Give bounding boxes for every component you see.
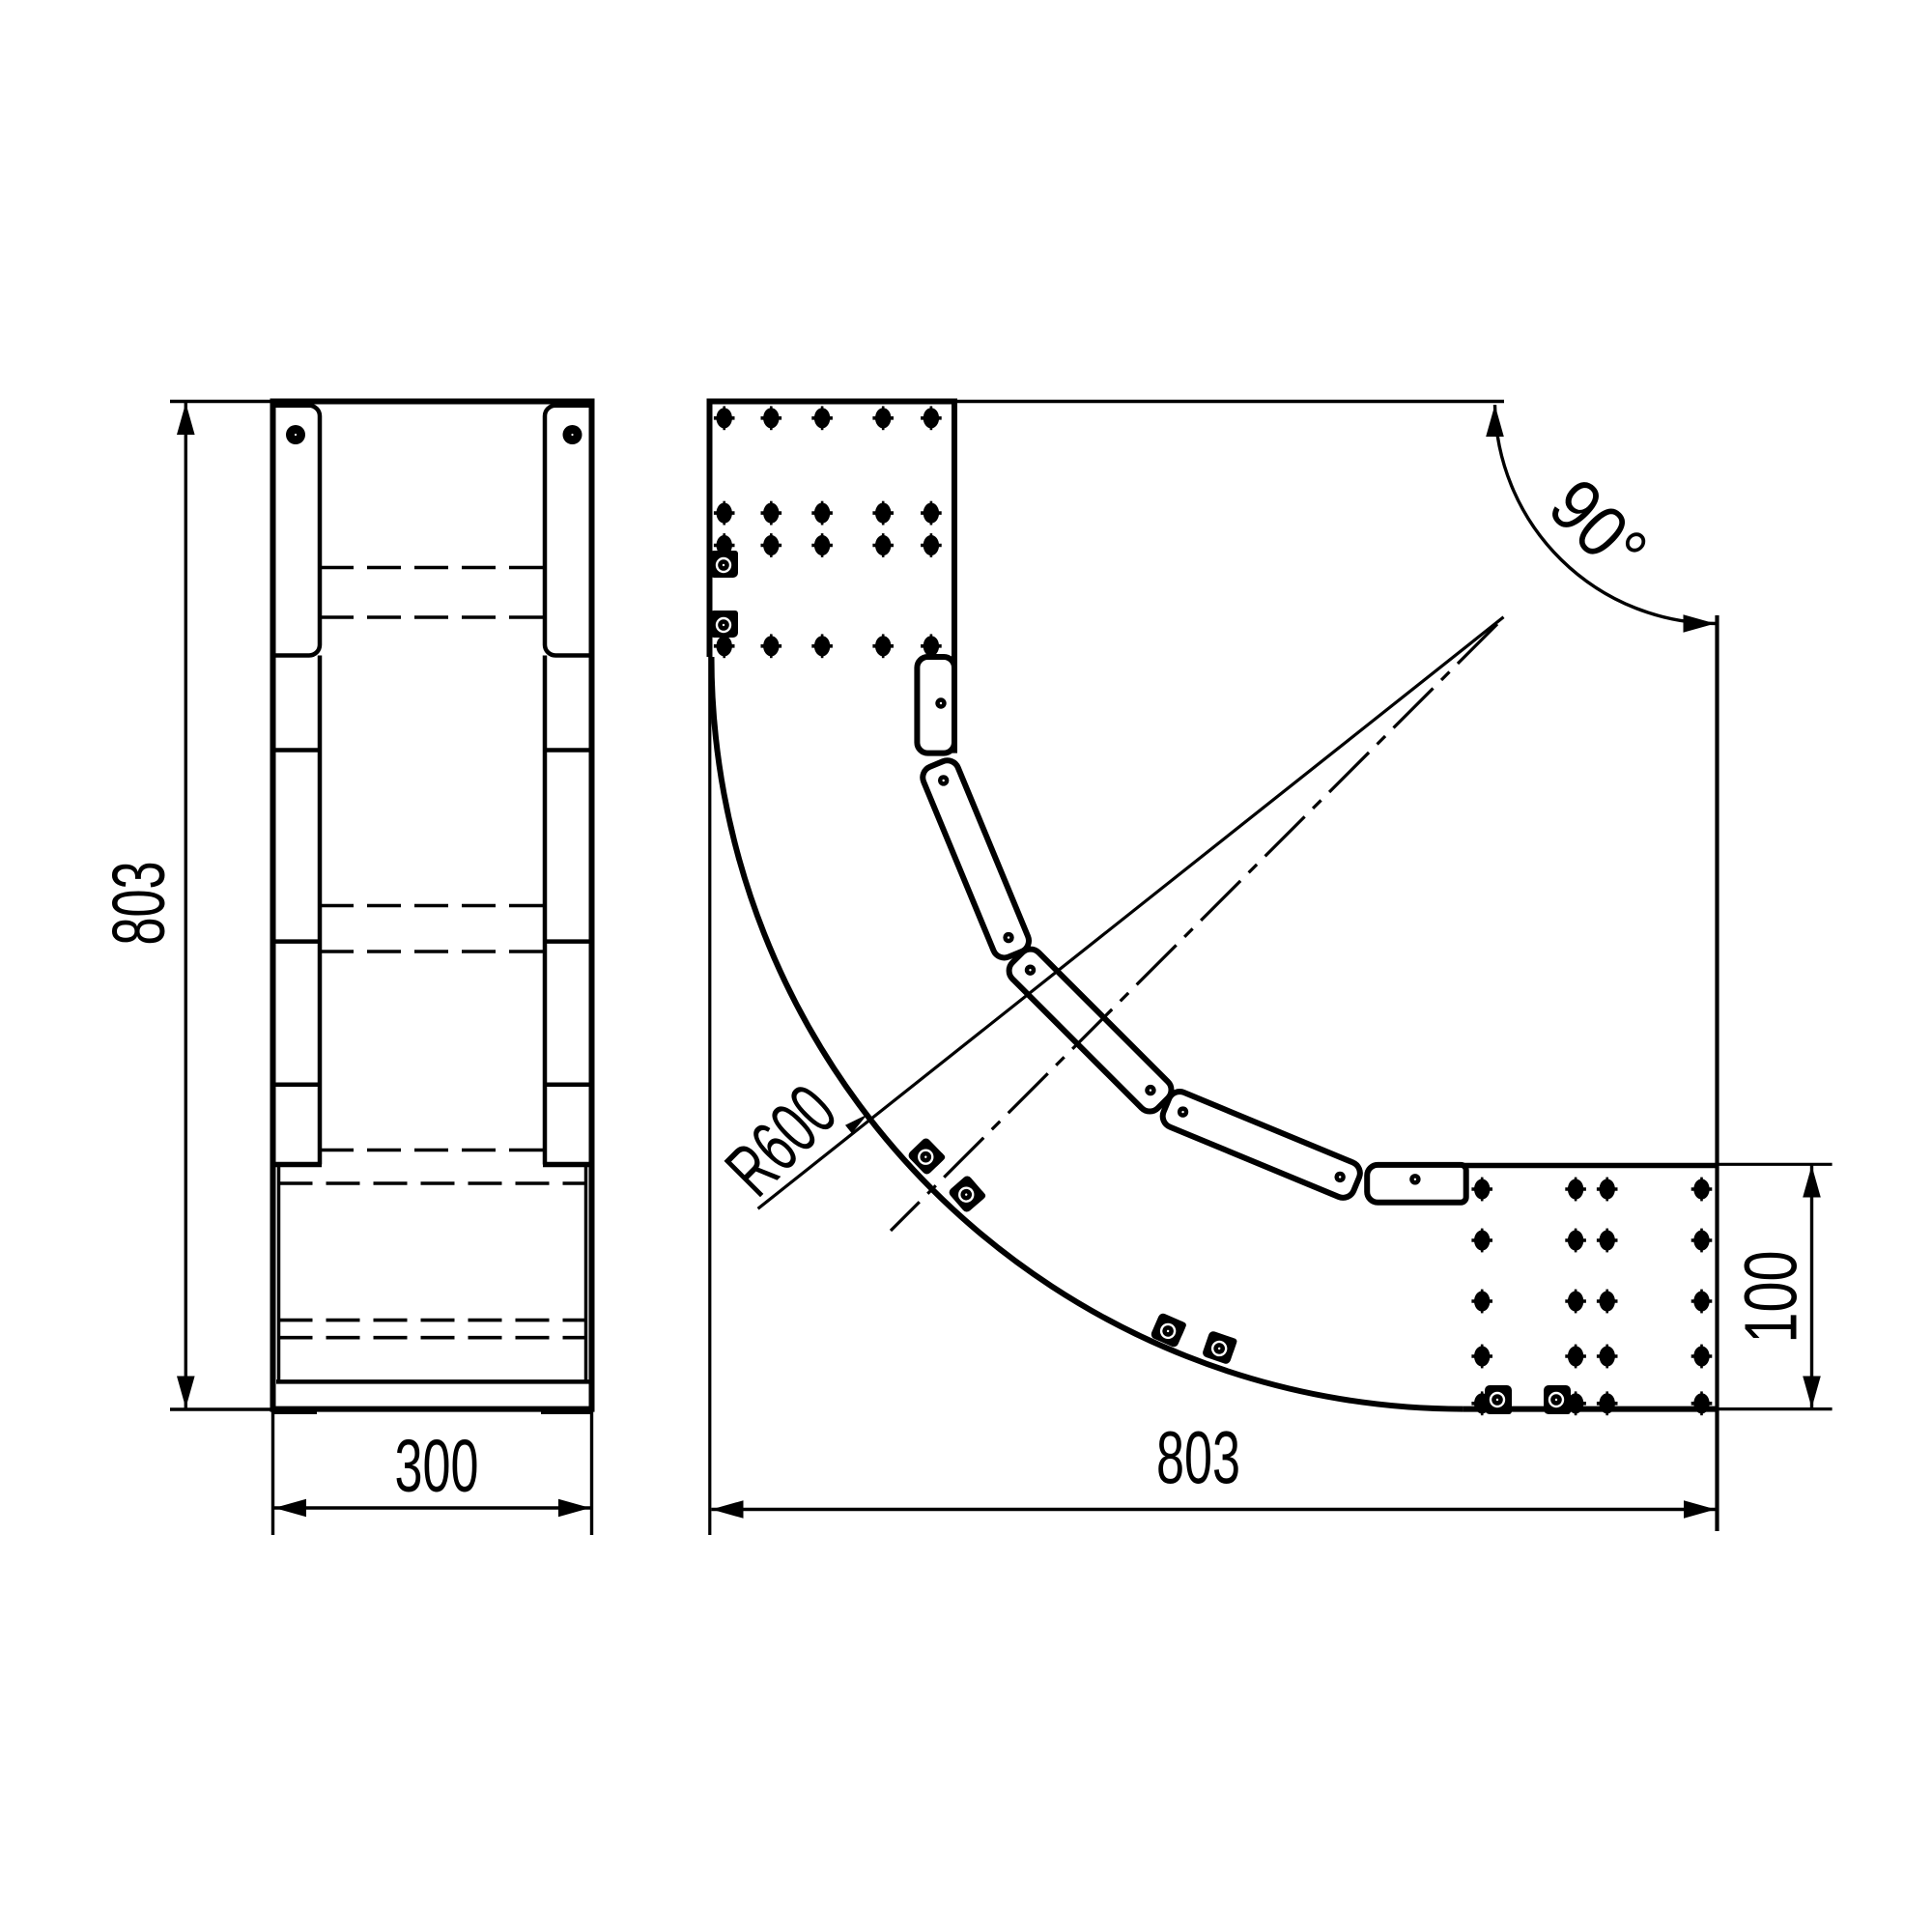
svg-text:100: 100 (1730, 1251, 1813, 1344)
svg-text:803: 803 (1156, 1417, 1240, 1500)
svg-text:803: 803 (98, 862, 181, 946)
svg-text:300: 300 (395, 1425, 479, 1508)
